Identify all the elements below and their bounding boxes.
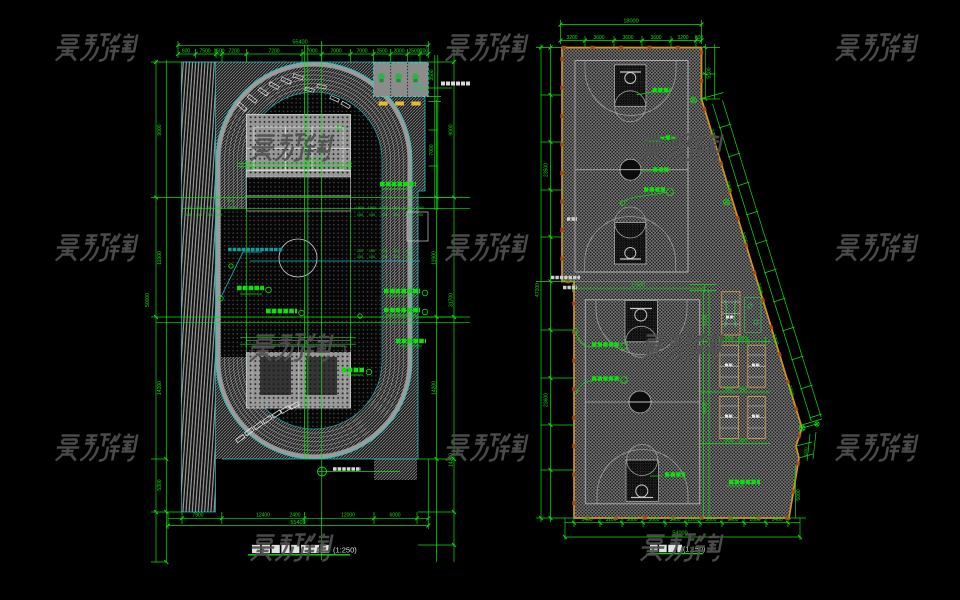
svg-text:7000: 7000 <box>429 144 435 155</box>
svg-text:100: 100 <box>206 206 212 210</box>
svg-text:1200: 1200 <box>380 206 388 210</box>
svg-text:12400: 12400 <box>256 513 270 519</box>
svg-text:18000: 18000 <box>623 19 638 25</box>
svg-text:100: 100 <box>186 206 192 210</box>
svg-text:5100: 5100 <box>703 314 709 325</box>
svg-text:2200: 2200 <box>687 517 698 523</box>
svg-text:5400: 5400 <box>771 517 782 523</box>
svg-text:150: 150 <box>206 213 212 217</box>
svg-text:1000: 1000 <box>229 206 237 210</box>
svg-text:2500: 2500 <box>408 49 419 55</box>
svg-text:55400: 55400 <box>290 520 305 526</box>
svg-text:150: 150 <box>405 255 411 259</box>
svg-text:900: 900 <box>739 336 748 342</box>
svg-text:7000: 7000 <box>356 49 367 55</box>
svg-text:1500: 1500 <box>213 49 224 55</box>
svg-text:150: 150 <box>196 206 202 210</box>
svg-text:1500: 1500 <box>416 206 424 210</box>
svg-text:150: 150 <box>357 213 363 217</box>
svg-text:11900: 11900 <box>157 251 163 265</box>
svg-text:31700: 31700 <box>449 293 455 307</box>
svg-text:3200: 3200 <box>677 35 688 41</box>
svg-text:11900: 11900 <box>432 251 438 265</box>
svg-text:100: 100 <box>216 213 222 217</box>
svg-text:7000: 7000 <box>306 49 317 55</box>
svg-text:150: 150 <box>381 213 387 217</box>
svg-text:9000: 9000 <box>157 124 163 135</box>
svg-text:(1:250): (1:250) <box>333 546 357 555</box>
svg-text:150: 150 <box>186 213 192 217</box>
svg-text:100: 100 <box>369 255 375 259</box>
svg-text:5300: 5300 <box>157 479 163 490</box>
svg-text:6000: 6000 <box>389 513 400 519</box>
svg-text:23600: 23600 <box>544 393 550 407</box>
svg-text:14200: 14200 <box>157 381 163 395</box>
svg-text:1500: 1500 <box>368 206 376 210</box>
svg-text:17500: 17500 <box>631 283 645 289</box>
svg-text:2400: 2400 <box>289 513 300 519</box>
svg-text:3100: 3100 <box>605 517 616 523</box>
svg-text:150: 150 <box>227 199 233 203</box>
svg-text:47100: 47100 <box>535 283 541 297</box>
svg-text:150: 150 <box>381 255 387 259</box>
svg-text:150: 150 <box>369 249 375 253</box>
svg-text:1500: 1500 <box>392 206 400 210</box>
svg-text:3200: 3200 <box>566 35 577 41</box>
svg-text:23500: 23500 <box>544 163 550 177</box>
svg-text:3600: 3600 <box>622 35 633 41</box>
svg-text:900: 900 <box>725 336 734 342</box>
svg-text:12000: 12000 <box>341 513 355 519</box>
svg-text:3500: 3500 <box>429 69 435 80</box>
svg-text:3000: 3000 <box>669 517 680 523</box>
svg-text:5000: 5000 <box>796 489 802 500</box>
svg-text:750: 750 <box>250 165 258 170</box>
svg-text:3000: 3000 <box>727 517 738 523</box>
svg-text:700: 700 <box>420 49 429 55</box>
svg-text:3000: 3000 <box>648 517 659 523</box>
svg-text:2500: 2500 <box>376 49 387 55</box>
svg-text:7500: 7500 <box>307 158 318 164</box>
svg-text:800: 800 <box>695 35 704 41</box>
svg-text:5400: 5400 <box>581 517 592 523</box>
svg-text:150: 150 <box>216 206 222 210</box>
svg-text:2000: 2000 <box>393 49 404 55</box>
svg-text:3600: 3600 <box>650 35 661 41</box>
svg-text:7200: 7200 <box>228 49 239 55</box>
svg-text:55400: 55400 <box>292 40 307 46</box>
svg-text:100: 100 <box>393 255 399 259</box>
svg-text:5100: 5100 <box>707 67 713 78</box>
svg-text:50000: 50000 <box>145 293 151 307</box>
svg-text:750: 750 <box>341 165 349 170</box>
svg-text:7900: 7900 <box>192 513 203 519</box>
svg-text:150: 150 <box>393 249 399 253</box>
svg-text:2600: 2600 <box>749 517 760 523</box>
svg-text:1200: 1200 <box>404 206 412 210</box>
svg-text:3000: 3000 <box>626 517 637 523</box>
svg-text:100: 100 <box>196 213 202 217</box>
svg-text:900: 900 <box>725 387 734 393</box>
svg-text:150: 150 <box>405 213 411 217</box>
svg-text:600: 600 <box>182 49 191 55</box>
svg-text:900: 900 <box>739 387 748 393</box>
svg-text:1000: 1000 <box>356 206 364 210</box>
svg-text:3000: 3000 <box>705 517 716 523</box>
svg-text:100: 100 <box>405 249 411 253</box>
svg-text:150: 150 <box>357 255 363 259</box>
svg-text:150: 150 <box>417 213 423 217</box>
svg-text:100: 100 <box>357 249 363 253</box>
svg-text:14200: 14200 <box>432 381 438 395</box>
svg-text:7200: 7200 <box>268 49 279 55</box>
svg-text:9000: 9000 <box>449 124 455 135</box>
svg-text:100: 100 <box>381 249 387 253</box>
svg-text:7500: 7500 <box>199 49 210 55</box>
svg-text:3600: 3600 <box>593 35 604 41</box>
svg-text:900: 900 <box>739 438 748 444</box>
svg-text:150: 150 <box>393 213 399 217</box>
svg-text:8800: 8800 <box>703 402 709 413</box>
svg-text:7000: 7000 <box>330 49 341 55</box>
svg-text:900: 900 <box>725 438 734 444</box>
svg-text:150: 150 <box>369 213 375 217</box>
